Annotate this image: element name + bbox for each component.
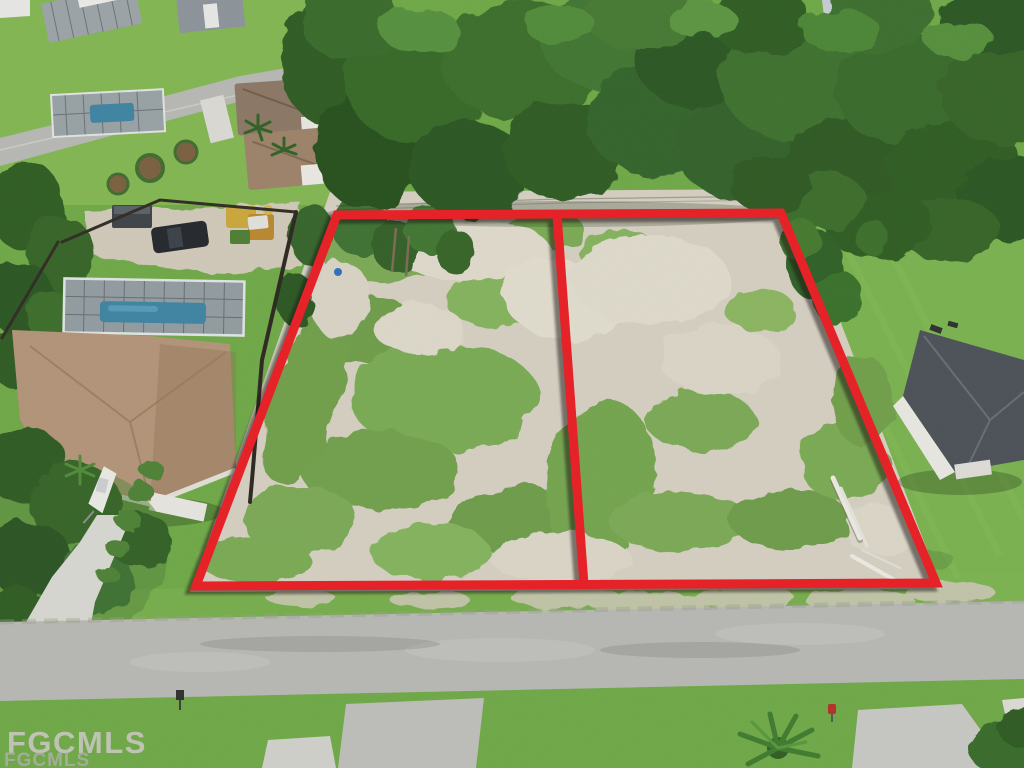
photo-grain bbox=[0, 0, 1024, 768]
aerial-photo-canvas: FGCMLS FGCMLS bbox=[0, 0, 1024, 768]
watermark-secondary: FGCMLS bbox=[4, 750, 90, 768]
aerial-photo: FGCMLS FGCMLS bbox=[0, 0, 1024, 768]
